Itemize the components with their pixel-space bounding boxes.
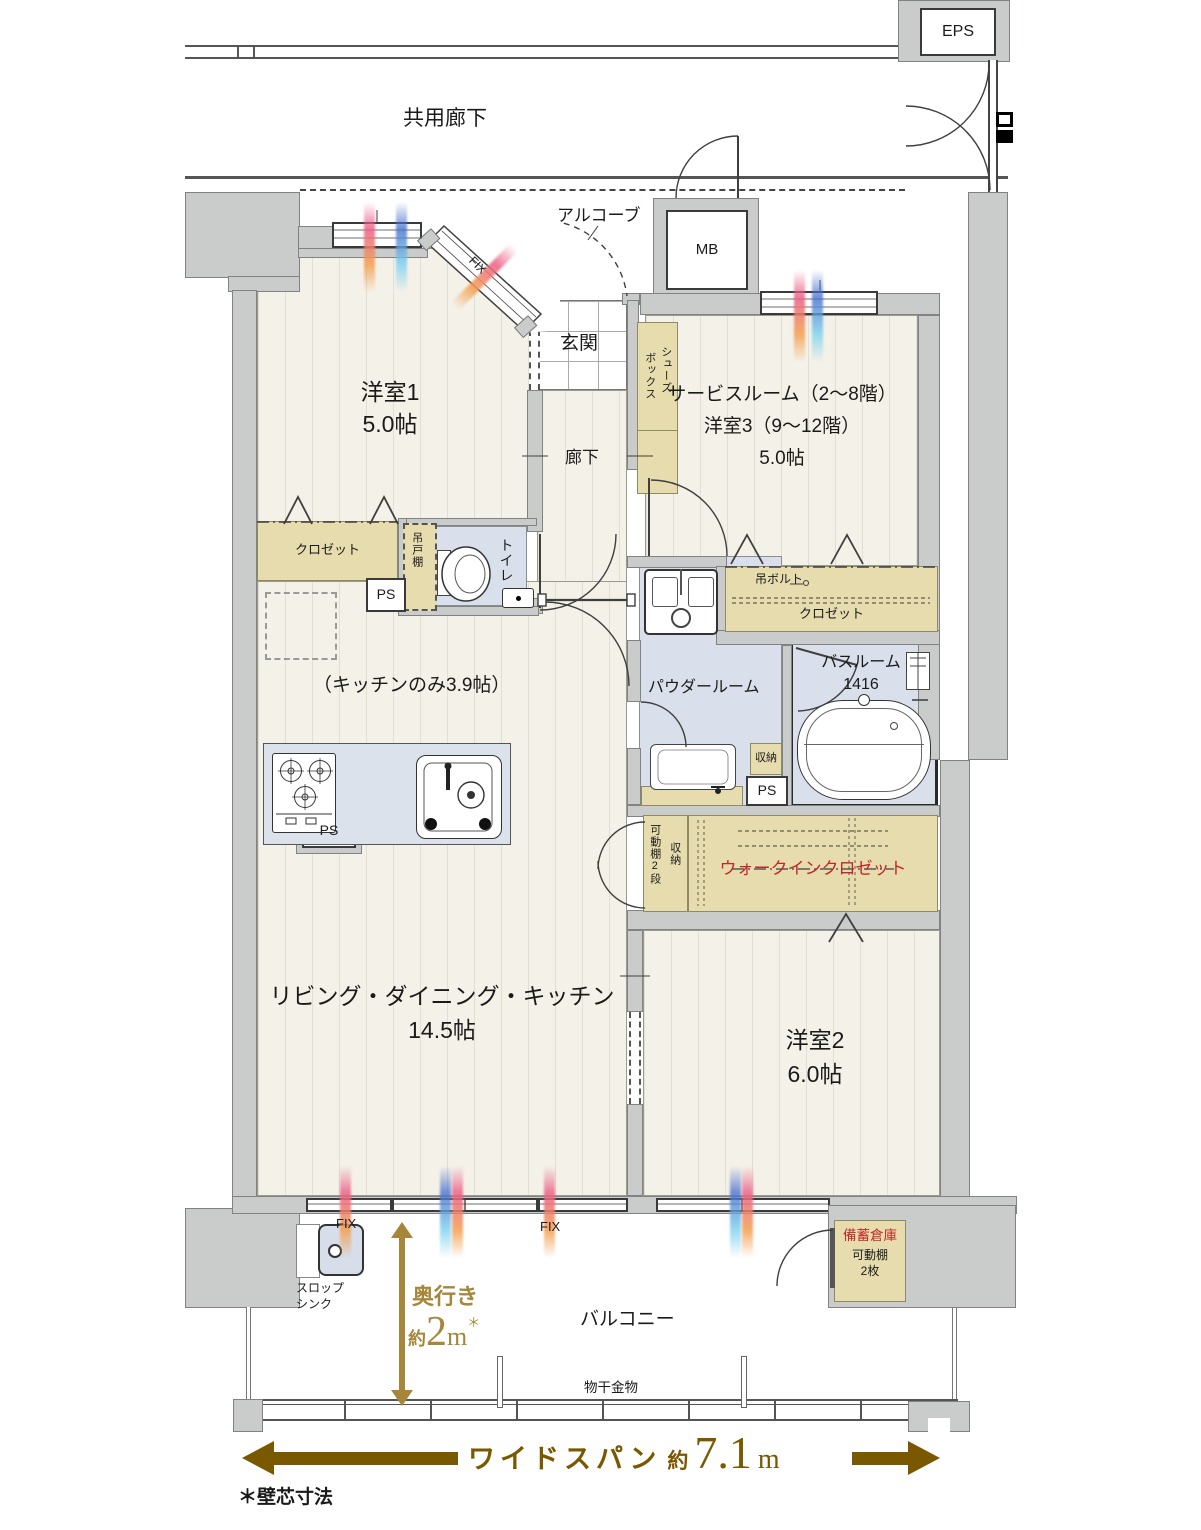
laundry-label: 物干金物 — [584, 1380, 638, 1397]
depth-unit: m — [447, 1322, 467, 1352]
balcony-label: バルコニー — [580, 1308, 675, 1332]
wall-entrance-left — [527, 295, 543, 330]
toilet-label: トイレ — [497, 538, 515, 583]
balcony-divider-right — [952, 1308, 957, 1400]
wall-hall-left — [527, 390, 543, 532]
bathroom-name: バスルーム — [800, 653, 922, 673]
ldk-size: 14.5帖 — [257, 1016, 627, 1045]
room1-closet-label: クロゼット — [257, 542, 398, 558]
corridor-top-line2 — [185, 57, 1008, 59]
depth-value: 2 — [426, 1308, 447, 1356]
balcony-railing — [258, 1399, 958, 1421]
span-text-row: ワイドスパン約7.1m — [468, 1426, 780, 1479]
wall-room2-left-b — [627, 1104, 643, 1196]
service-bolt-label: 吊ボルト — [755, 572, 803, 587]
mb-label: MB — [666, 210, 748, 290]
powder-ps-label: PS — [746, 776, 788, 806]
ldk-sliding-window — [392, 1198, 538, 1212]
stock-shelf: 可動棚 — [834, 1248, 906, 1263]
fix-label-left: FIX — [336, 1216, 356, 1232]
hanging-cupboard-label: 吊戸棚 — [409, 532, 423, 568]
wall-outer-right — [968, 192, 1008, 760]
fire-hydrant-icon — [996, 112, 1013, 127]
wall-left — [232, 290, 257, 1208]
depth-approx: 約 — [408, 1325, 426, 1351]
service-room-line3: 5.0帖 — [651, 447, 913, 471]
bathtub-inner — [806, 708, 922, 792]
wall-powder-top — [627, 556, 727, 568]
window-stripe-cool4 — [730, 1166, 741, 1258]
service-room-line2: 洋室3（9～12階） — [651, 415, 913, 439]
washing-machine-drain — [671, 608, 691, 628]
washing-machine-left — [652, 577, 678, 607]
balcony-divider-left — [246, 1307, 251, 1400]
span-label: ワイドスパン — [468, 1437, 661, 1476]
hallway-label: 廊下 — [565, 447, 599, 468]
span-arrow-head-right — [908, 1441, 940, 1475]
wall-wic-bottom — [627, 910, 940, 930]
floorplan: 共用廊下 EPS アルコーブ MB 玄関 シューズ ボックス 洋室1 5.0帖 … — [0, 0, 1201, 1530]
service-room-floor — [645, 315, 918, 566]
balcony-railing-line — [258, 1404, 958, 1405]
room1-window — [332, 222, 422, 248]
depth-arrow-head-top — [391, 1222, 413, 1238]
vanity-basin — [650, 744, 736, 790]
span-arrow-shaft-left — [272, 1452, 458, 1465]
depth-note: ＊ — [467, 1312, 480, 1331]
wic-shelf-label: 可動棚2段 — [647, 824, 661, 885]
kitchen-note: （キッチンのみ3.9帖） — [313, 674, 510, 698]
washing-machine-stem — [680, 569, 682, 595]
powder-storage-label: 収納 — [750, 743, 782, 775]
bathroom-size: 1416 — [800, 675, 922, 695]
wall-powder-left-a — [627, 640, 641, 702]
window-stripe-warm2 — [794, 270, 805, 362]
window-stripe-warm3 — [340, 1166, 351, 1258]
wic-storage-label: 収納 — [667, 842, 681, 866]
laundry-pole-right — [741, 1356, 747, 1408]
room1-size: 5.0帖 — [290, 410, 490, 439]
laundry-pole-left — [497, 1356, 503, 1408]
toilet-sink-drain — [516, 596, 521, 601]
refrigerator-space — [265, 592, 337, 660]
kitchen-sink — [416, 755, 502, 839]
corridor-tick2 — [253, 45, 255, 59]
depth-label: 奥行き — [412, 1283, 478, 1311]
corridor-label: 共用廊下 — [403, 106, 487, 132]
corridor-tick — [237, 45, 239, 59]
room1-name: 洋室1 — [290, 378, 490, 407]
wall-room2-left-a — [627, 930, 643, 1012]
toilet-tank — [437, 550, 451, 596]
fix-label-mid: FIX — [540, 1219, 560, 1235]
room2-name: 洋室2 — [700, 1026, 930, 1055]
slop-sink-label-1: スロップ — [296, 1281, 344, 1296]
depth-value-row: 約2m＊ — [408, 1308, 480, 1356]
wall-right-lower — [940, 760, 970, 1208]
alcove-label: アルコーブ — [557, 205, 640, 226]
bathtub-line — [804, 744, 924, 745]
span-arrow-head-left — [242, 1441, 274, 1475]
bathtub-faucet — [858, 694, 870, 706]
room2-sliding-door — [629, 1012, 641, 1104]
fire-hydrant-icon-base — [996, 130, 1013, 143]
window-stripe-warm5 — [544, 1166, 555, 1258]
window-stripe-cool — [396, 202, 407, 292]
window-stripe-warm4 — [452, 1166, 463, 1258]
entrance-label: 玄関 — [560, 332, 598, 356]
span-arrow-shaft-right — [852, 1452, 910, 1465]
slop-sink-base — [296, 1224, 320, 1278]
powder-room-label: パウダールーム — [648, 678, 760, 698]
washing-machine-right — [688, 577, 714, 607]
service-room-line1: サービスルーム（2～8階） — [651, 383, 913, 407]
wall-powder-left-b — [627, 748, 641, 805]
depth-arrow-shaft — [399, 1236, 405, 1392]
window-stripe-cool3 — [440, 1166, 451, 1258]
wall-room1-sill — [298, 248, 428, 258]
stock-count: 2枚 — [834, 1264, 906, 1279]
corridor-bottom-line — [185, 176, 1008, 179]
eps-label: EPS — [920, 8, 996, 56]
ldk-name: リビング・ダイニング・キッチン — [257, 982, 627, 1011]
service-closet-label: クロゼット — [725, 606, 938, 622]
span-value: 7.1 — [694, 1426, 752, 1479]
balcony-corner-left — [233, 1399, 263, 1432]
room2-size: 6.0帖 — [700, 1060, 930, 1089]
wic-label: ウォークインクロゼット — [688, 858, 938, 879]
corridor-top-line — [185, 45, 1008, 47]
footnote: ＊壁芯寸法 — [238, 1486, 333, 1510]
span-approx: 約 — [667, 1445, 688, 1475]
wall-bottomleft-block — [185, 1208, 300, 1308]
stock-name: 備蓄倉庫 — [834, 1228, 906, 1245]
window-stripe-warm6 — [742, 1166, 753, 1258]
depth-arrow-head-bottom — [391, 1390, 413, 1406]
wall-bath-top — [716, 630, 940, 645]
wall-topleft-block — [185, 192, 300, 278]
bath-drain — [890, 722, 898, 730]
slop-sink-label-2: シンク — [296, 1297, 332, 1312]
window-stripe-cool2 — [812, 270, 823, 362]
room1-sliding-door — [529, 330, 540, 390]
balcony-corner-notch — [928, 1418, 950, 1432]
span-unit: m — [758, 1444, 780, 1476]
toilet-ps-label: PS — [366, 578, 406, 612]
corridor-dashed-line — [300, 189, 905, 191]
kitchen-ps-label: PS — [302, 814, 356, 848]
window-stripe-warm — [364, 202, 375, 292]
